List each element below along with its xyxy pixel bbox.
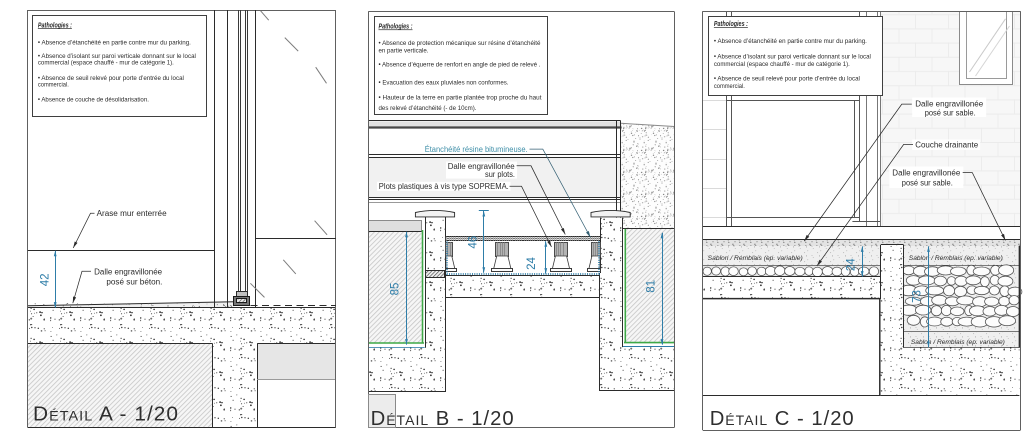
svg-text:Arase mur enterrée: Arase mur enterrée [97,209,168,218]
svg-text:24: 24 [846,258,858,271]
svg-text:81: 81 [645,280,657,293]
svg-text:Sablon / Remblais (ep. variabl: Sablon / Remblais (ep. variable) [909,255,1003,262]
svg-text:sur plots.: sur plots. [485,170,515,179]
svg-text:Détail B - 1/20: Détail B - 1/20 [371,408,515,430]
svg-text:commercial (espace chauffé - m: commercial (espace chauffé - mur de caté… [38,60,174,67]
svg-text:commercial.: commercial. [714,83,745,90]
svg-text:• Evacuation des eaux pluviale: • Evacuation des eaux pluviales non conf… [379,80,509,87]
svg-text:85: 85 [389,283,401,296]
svg-text:Sablon / Remblais (ep. variabl: Sablon / Remblais (ep. variable) [911,339,1005,346]
svg-text:Étanchéité résine bitumineuse.: Étanchéité résine bitumineuse. [425,145,528,154]
svg-text:42: 42 [39,274,51,287]
svg-text:Pathologies :: Pathologies : [714,21,748,28]
svg-text:24: 24 [526,257,538,270]
svg-text:Plots plastiques à vis type SO: Plots plastiques à vis type SOPREMA. [379,182,509,191]
svg-text:Dalle engravillonée: Dalle engravillonée [915,100,984,109]
svg-text:• Absence de protection mécani: • Absence de protection mécanique sur ré… [379,40,541,47]
svg-text:73: 73 [912,290,924,303]
svg-text:• Absence d’isolant sur paroi: • Absence d’isolant sur paroi verticale … [714,54,872,61]
svg-text:46: 46 [468,236,480,249]
svg-text:posé sur béton.: posé sur béton. [106,277,162,286]
svg-text:en partie verticale.: en partie verticale. [379,47,429,54]
svg-text:• Absence de seuil relevé pour: • Absence de seuil relevé pour porte d’e… [714,76,861,83]
svg-text:commercial.: commercial. [38,82,69,89]
svg-text:commercial (espace chauffé - m: commercial (espace chauffé - mur de caté… [714,61,850,68]
svg-text:Détail A - 1/20: Détail A - 1/20 [33,403,179,425]
svg-text:des relevé d’étanchéité (- de: des relevé d’étanchéité (- de 10cm). [379,105,477,112]
svg-text:Pathologies :: Pathologies : [38,22,72,29]
svg-text:posé sur sable.: posé sur sable. [925,108,976,117]
svg-text:• Absence de couche de désolid: • Absence de couche de désolidarisation. [38,97,149,104]
svg-text:Dalle engravillonée: Dalle engravillonée [892,169,961,178]
svg-text:Couche drainante: Couche drainante [915,140,979,149]
svg-text:Dalle engravillonée: Dalle engravillonée [94,267,163,276]
svg-text:• Absence d’étanchéité en part: • Absence d’étanchéité en partie contre … [714,38,867,45]
svg-text:Sablon / Remblais (ep. variabl: Sablon / Remblais (ep. variable) [708,255,803,262]
svg-text:• Absence d’équerre de renfort: • Absence d’équerre de renfort en angle … [379,62,541,69]
svg-text:Détail C - 1/20: Détail C - 1/20 [710,408,855,430]
svg-text:posé sur sable.: posé sur sable. [902,178,953,187]
svg-text:• Absence d’étanchéité en part: • Absence d’étanchéité en partie contre … [38,40,191,47]
svg-text:• Hauteur de la terre en parti: • Hauteur de la terre en partie plantée … [379,95,542,102]
svg-text:Pathologies :: Pathologies : [379,23,413,30]
